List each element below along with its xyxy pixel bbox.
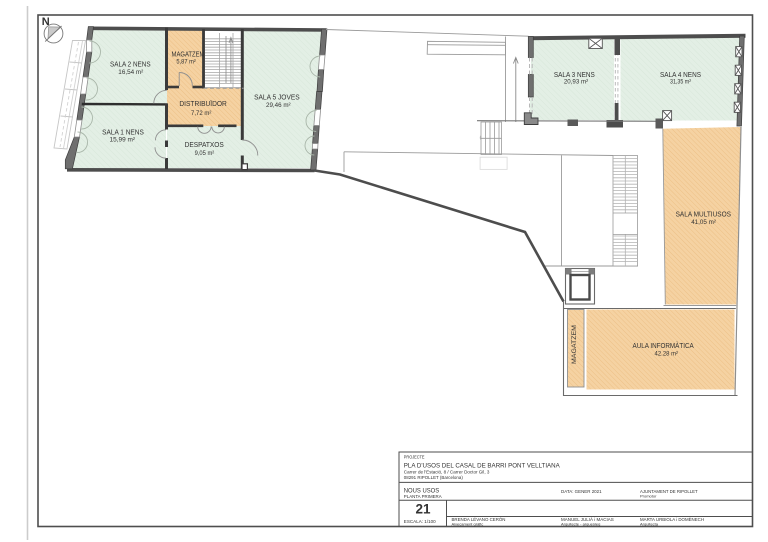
svg-text:29,46 m²: 29,46 m² [266, 102, 291, 109]
svg-text:Arquitecta: Arquitecta [640, 522, 659, 527]
svg-text:15,99 m²: 15,99 m² [110, 137, 136, 144]
svg-text:DISTRIBUÏDOR: DISTRIBUÏDOR [179, 100, 226, 108]
svg-text:AULA INFORMÀTICA: AULA INFORMÀTICA [633, 341, 695, 350]
svg-text:SALA 1 NENS: SALA 1 NENS [102, 129, 144, 136]
svg-text:SALA 5 JOVES: SALA 5 JOVES [254, 95, 300, 102]
svg-text:31,35 m²: 31,35 m² [670, 79, 692, 86]
svg-text:21: 21 [415, 502, 431, 517]
svg-text:DATA: GENER 2021: DATA: GENER 2021 [561, 489, 602, 494]
svg-text:DESPATXOS: DESPATXOS [185, 142, 225, 149]
svg-text:MAGATZEM: MAGATZEM [571, 325, 578, 364]
svg-text:Carrer de l'Estació, 8 / Carre: Carrer de l'Estació, 8 / Carrer Doctor G… [404, 470, 490, 475]
svg-text:16,54 m²: 16,54 m² [118, 69, 144, 76]
svg-text:PLA D'USOS DEL CASAL DE BARRI: PLA D'USOS DEL CASAL DE BARRI PONT VELLT… [404, 462, 561, 469]
svg-text:42.28 m²: 42.28 m² [655, 351, 679, 358]
svg-text:ESCALA: 1/100: ESCALA: 1/100 [404, 519, 437, 524]
svg-text:Promotor: Promotor [640, 494, 657, 499]
svg-text:PROJECTE: PROJECTE [404, 455, 425, 460]
svg-text:08291 RIPOLLET (Barcelona): 08291 RIPOLLET (Barcelona) [404, 475, 464, 480]
svg-text:Arquitecte - arqueòleg: Arquitecte - arqueòleg [561, 522, 600, 527]
svg-text:Aixecament gràfic: Aixecament gràfic [452, 522, 484, 527]
svg-text:7,72 m²: 7,72 m² [191, 110, 212, 117]
svg-text:9,05 m²: 9,05 m² [195, 150, 215, 157]
svg-text:41,05 m²: 41,05 m² [691, 219, 717, 226]
svg-text:20,93 m²: 20,93 m² [564, 79, 589, 86]
svg-text:5,87 m²: 5,87 m² [176, 59, 196, 66]
svg-text:SALA 2 NENS: SALA 2 NENS [110, 61, 151, 68]
svg-text:SALA MULTIUSOS: SALA MULTIUSOS [676, 211, 732, 218]
svg-text:PLANTA PRIMERA: PLANTA PRIMERA [404, 494, 442, 499]
